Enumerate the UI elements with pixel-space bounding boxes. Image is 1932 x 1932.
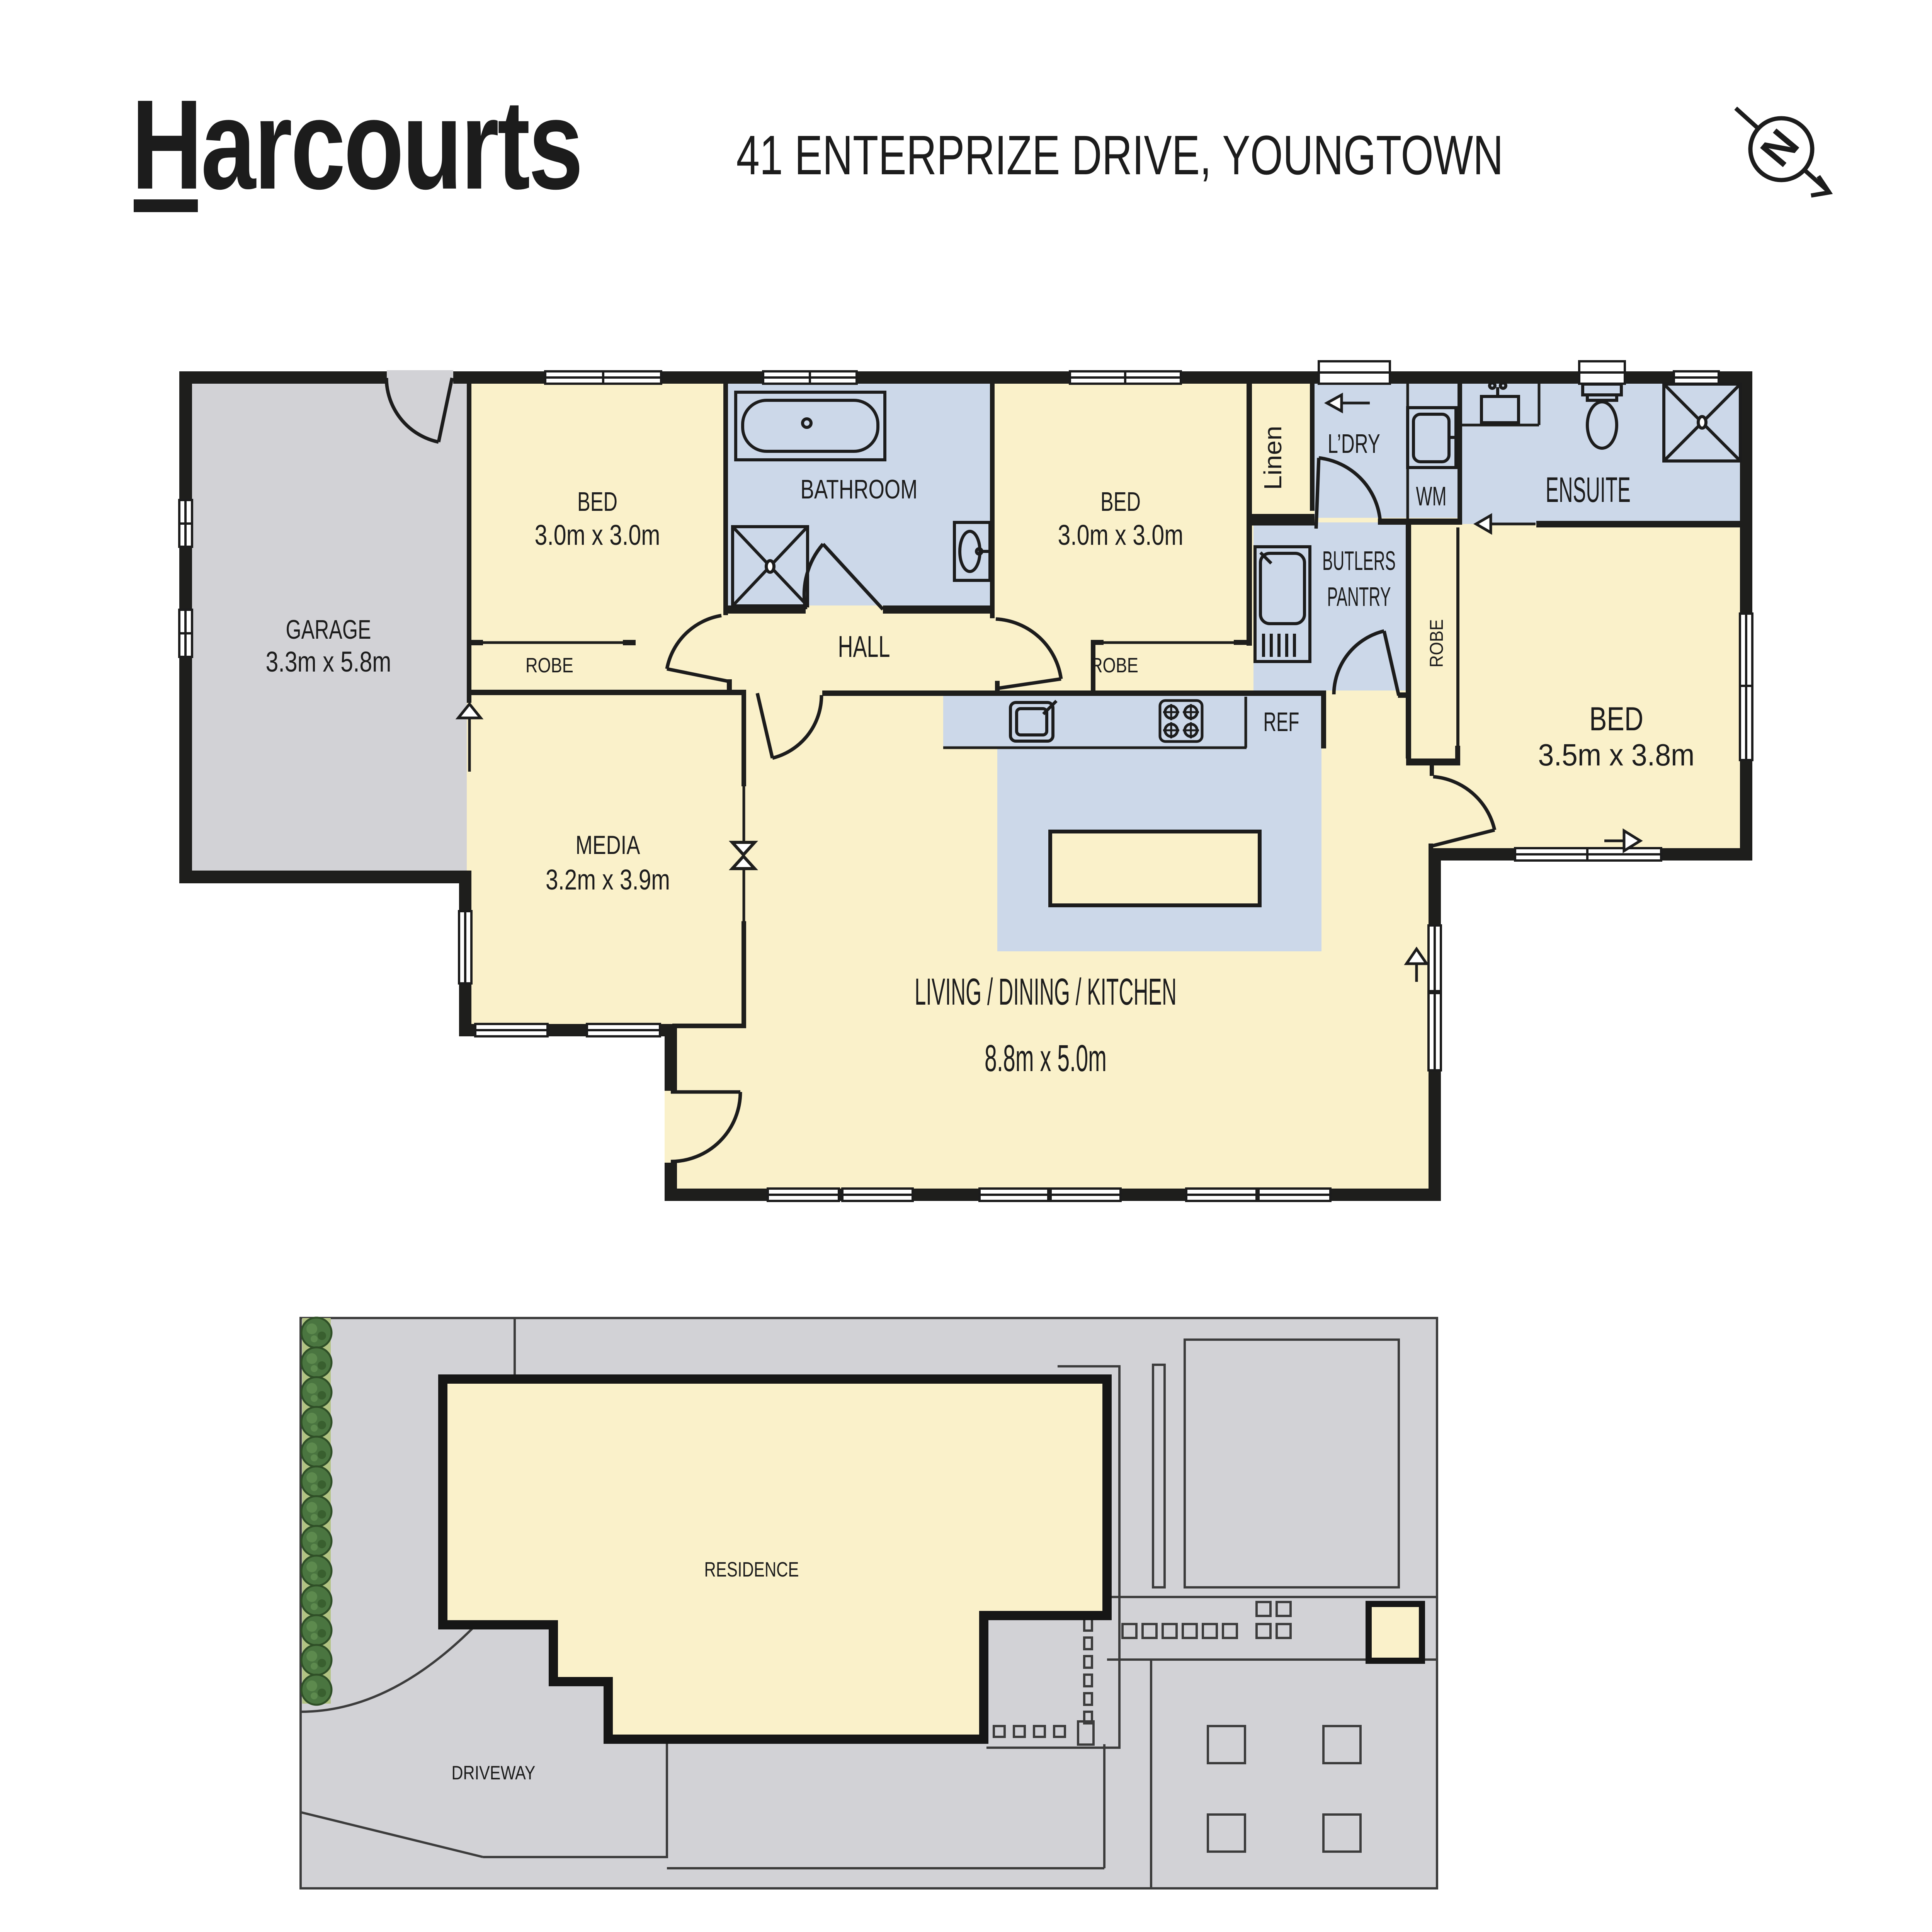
svg-text:LIVING / DINING / KITCHEN: LIVING / DINING / KITCHEN: [915, 971, 1177, 1013]
svg-text:RESIDENCE: RESIDENCE: [704, 1558, 799, 1581]
svg-text:DRIVEWAY: DRIVEWAY: [452, 1762, 536, 1784]
svg-text:BED: BED: [577, 486, 617, 517]
svg-text:ROBE: ROBE: [1090, 654, 1138, 677]
svg-text:REF: REF: [1264, 707, 1299, 737]
svg-text:3.3m x 5.8m: 3.3m x 5.8m: [266, 646, 391, 678]
svg-text:GARAGE: GARAGE: [286, 614, 371, 645]
svg-text:PANTRY: PANTRY: [1327, 582, 1391, 612]
svg-text:BED: BED: [1100, 486, 1141, 517]
svg-text:3.0m x 3.0m: 3.0m x 3.0m: [535, 519, 660, 551]
svg-text:MEDIA: MEDIA: [576, 830, 640, 860]
svg-text:BATHROOM: BATHROOM: [801, 474, 918, 504]
svg-text:BED: BED: [1589, 701, 1643, 738]
svg-text:3.0m x 3.0m: 3.0m x 3.0m: [1058, 519, 1184, 551]
svg-text:3.5m x 3.8m: 3.5m x 3.8m: [1538, 738, 1695, 772]
svg-text:BUTLERS: BUTLERS: [1322, 546, 1396, 576]
svg-text:L’DRY: L’DRY: [1328, 429, 1380, 459]
svg-text:41 ENTERPRIZE DRIVE, YOUNGTOWN: 41 ENTERPRIZE DRIVE, YOUNGTOWN: [736, 124, 1503, 186]
svg-text:ENSUITE: ENSUITE: [1546, 470, 1631, 510]
svg-text:ROBE: ROBE: [526, 654, 573, 677]
svg-text:Linen: Linen: [1259, 426, 1287, 490]
svg-text:HALL: HALL: [838, 629, 890, 663]
svg-text:3.2m x 3.9m: 3.2m x 3.9m: [546, 864, 670, 896]
svg-text:Harcourts: Harcourts: [131, 73, 582, 216]
svg-text:WM: WM: [1416, 481, 1447, 511]
svg-text:ROBE: ROBE: [1427, 619, 1447, 668]
svg-text:8.8m x 5.0m: 8.8m x 5.0m: [985, 1037, 1107, 1079]
